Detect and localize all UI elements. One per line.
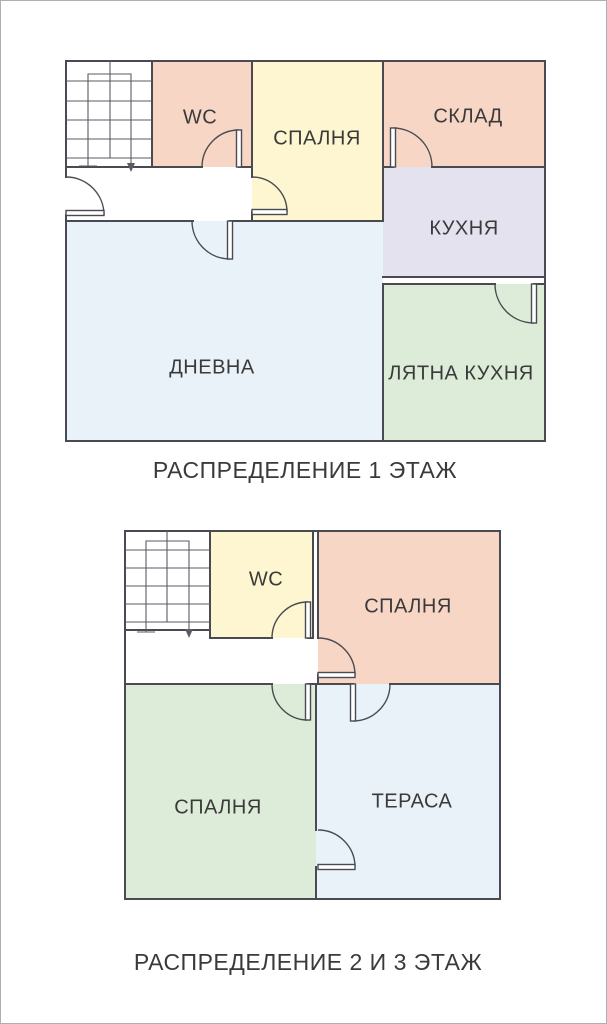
- floor1-caption: РАСПРЕДЕЛЕНИЕ 1 ЭТАЖ: [153, 457, 457, 483]
- room-label-wc-1: WC: [183, 106, 217, 128]
- room-label-bedroom-upper: СПАЛНЯ: [364, 595, 452, 617]
- floor23-plan: WC СПАЛНЯ СПАЛНЯ ТЕРАСА РАСПРЕДЕЛЕНИЕ 2 …: [125, 531, 500, 975]
- room-bedroom-lower: [125, 684, 316, 899]
- floor23-caption: РАСПРЕДЕЛЕНИЕ 2 И 3 ЭТАЖ: [134, 949, 482, 975]
- room-label-summer-kitchen: ЛЯТНА КУХНЯ: [388, 362, 533, 384]
- room-label-living: ДНЕВНА: [169, 356, 255, 378]
- room-stairwell-1: [66, 61, 152, 167]
- room-living: [66, 221, 383, 441]
- room-label-storage: СКЛАД: [433, 105, 502, 127]
- room-label-bedroom-1: СПАЛНЯ: [273, 127, 361, 149]
- room-label-wc-2: WC: [249, 568, 283, 590]
- room-label-terrace: ТЕРАСА: [372, 790, 453, 812]
- room-label-bedroom-lower: СПАЛНЯ: [174, 796, 262, 818]
- floor-plan-page: WC СПАЛНЯ СКЛАД КУХНЯ ДНЕВНА ЛЯТНА КУХНЯ…: [0, 0, 607, 1024]
- room-label-kitchen: КУХНЯ: [429, 217, 498, 239]
- floor1-plan: WC СПАЛНЯ СКЛАД КУХНЯ ДНЕВНА ЛЯТНА КУХНЯ…: [66, 61, 545, 483]
